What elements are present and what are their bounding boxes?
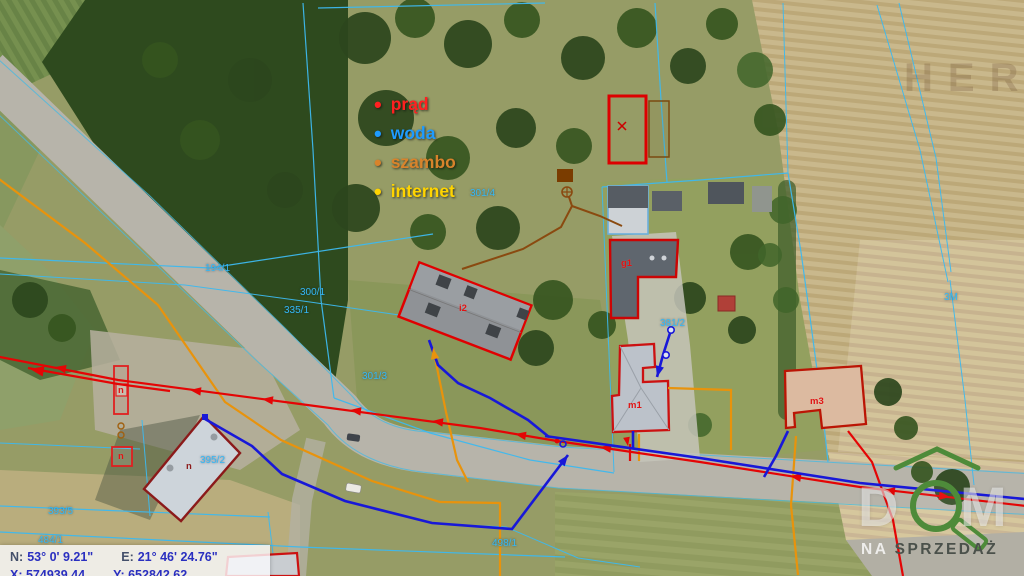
building-label-i2-0: i2 xyxy=(459,303,467,314)
magnifier-icon xyxy=(913,483,959,529)
legend-item-szambo: •szambo xyxy=(374,148,456,177)
outline-brown xyxy=(649,101,669,157)
parcel-label-381-2: 381/2 xyxy=(660,318,685,329)
legend-label: szambo xyxy=(391,152,456,173)
legend-bullet-icon: • xyxy=(374,152,382,174)
logo-tagline: NA SPRZEDAŻ xyxy=(861,541,998,559)
legend-bullet-icon: • xyxy=(374,123,382,145)
logo-tag-na: NA xyxy=(861,541,888,558)
legend-item-woda: •woda xyxy=(374,119,456,148)
parcel-label-301-3: 301/3 xyxy=(362,371,387,382)
gazebo xyxy=(718,296,735,311)
parcel-label-393-5: 393/5 xyxy=(48,506,73,517)
legend-label: woda xyxy=(391,123,436,144)
legend-item-prąd: •prąd xyxy=(374,90,456,119)
parcel-label-395-2: 395/2 xyxy=(200,455,225,466)
building-label-n-5: n xyxy=(118,451,124,462)
legend-label: prąd xyxy=(391,94,429,115)
parcel-label-3M: 3M xyxy=(944,292,958,303)
coord-y: Y: 652842.62 xyxy=(113,568,187,576)
background-watermark: HERS xyxy=(904,56,1024,101)
logo-letter-m: M xyxy=(960,474,1007,539)
legend-bullet-icon: • xyxy=(374,181,382,203)
parcel-label-301-4: 301/4 xyxy=(470,188,495,199)
logo-tag-sprzedaz: SPRZEDAŻ xyxy=(895,541,999,558)
parcel-label-335-1: 335/1 xyxy=(284,305,309,316)
utilities-legend: •prąd•woda•szambo•internet xyxy=(374,90,456,206)
legend-item-internet: •internet xyxy=(374,177,456,206)
building-label-m3-3: m3 xyxy=(810,396,824,407)
building-label-g1-1: g1 xyxy=(621,258,632,269)
parcel-label-300-1: 300/1 xyxy=(300,287,325,298)
parcel-label-194-1: 194/1 xyxy=(205,263,230,274)
building-label-m1-2: m1 xyxy=(628,400,642,411)
coord-e: E:21° 46' 24.76" xyxy=(121,550,217,564)
parcel-label-498-1: 498/1 xyxy=(492,538,517,549)
coord-n: N:53° 0' 9.21" xyxy=(10,550,93,564)
logo-letter-d: D xyxy=(858,474,898,539)
coordinates-overlay: N:53° 0' 9.21" E:21° 46' 24.76" X: 57493… xyxy=(0,545,270,576)
aerial-map[interactable]: •prąd•woda•szambo•internet HERS D M NA S… xyxy=(0,0,1024,576)
coord-x: X: 574939.44 xyxy=(10,568,85,576)
building-label-n-4: n xyxy=(118,385,124,396)
legend-label: internet xyxy=(391,181,455,202)
legend-bullet-icon: • xyxy=(374,94,382,116)
building-label-n-6: n xyxy=(186,461,192,472)
